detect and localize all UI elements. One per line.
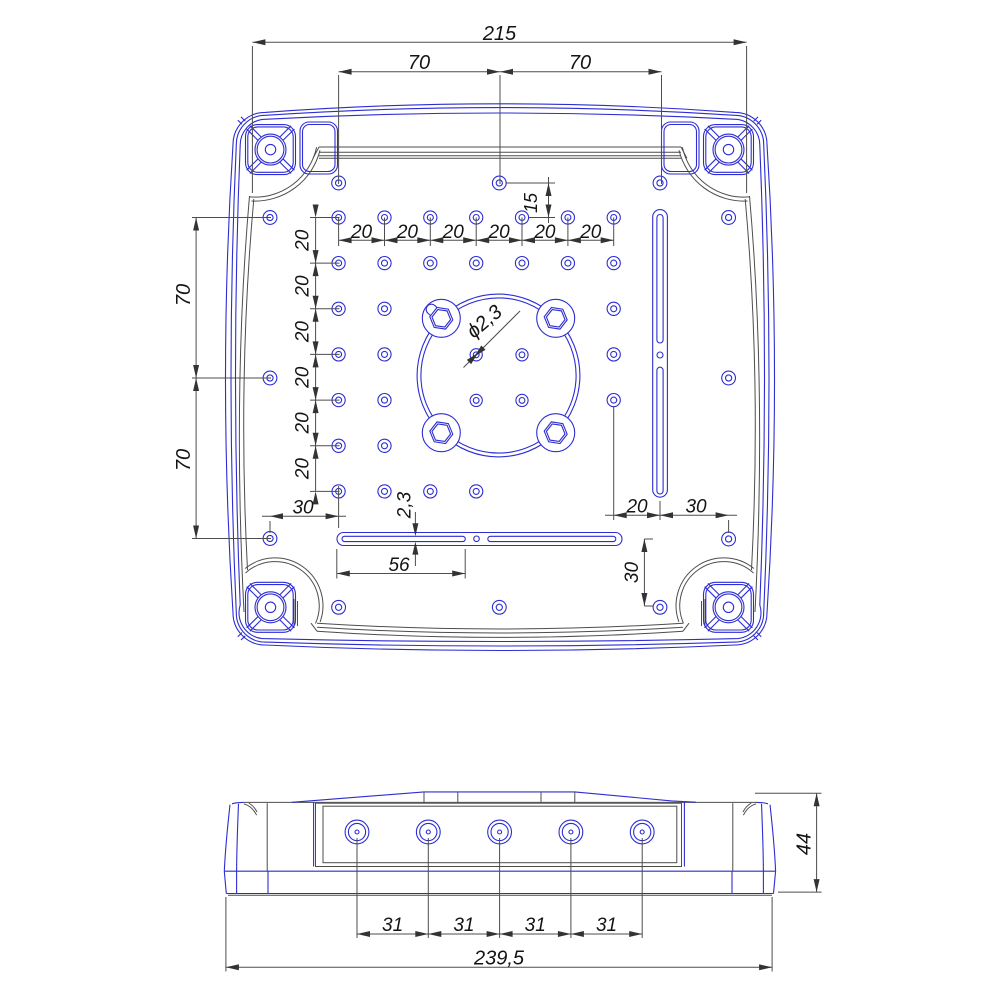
svg-text:20: 20 [293, 321, 314, 344]
svg-text:30: 30 [292, 498, 314, 519]
svg-text:56: 56 [388, 555, 410, 576]
svg-text:70: 70 [173, 449, 195, 471]
svg-text:20: 20 [293, 412, 314, 435]
svg-text:30: 30 [685, 496, 707, 517]
svg-text:20: 20 [293, 275, 314, 298]
svg-text:20: 20 [396, 222, 419, 243]
svg-text:31: 31 [596, 915, 617, 936]
svg-text:70: 70 [569, 52, 591, 74]
svg-text:20: 20 [293, 458, 314, 481]
svg-text:215: 215 [482, 23, 517, 45]
svg-text:44: 44 [794, 833, 816, 855]
svg-text:20: 20 [579, 222, 602, 243]
svg-text:70: 70 [173, 284, 195, 306]
svg-text:15: 15 [521, 192, 541, 213]
svg-text:30: 30 [622, 562, 643, 584]
svg-text:31: 31 [382, 915, 403, 936]
svg-text:20: 20 [350, 222, 373, 243]
svg-text:20: 20 [442, 222, 465, 243]
svg-text:20: 20 [488, 222, 511, 243]
svg-text:2,3: 2,3 [395, 491, 416, 519]
svg-text:20: 20 [293, 366, 314, 389]
svg-text:70: 70 [408, 52, 430, 74]
svg-text:20: 20 [533, 222, 556, 243]
svg-text:31: 31 [525, 915, 546, 936]
svg-text:20: 20 [293, 229, 314, 252]
svg-text:31: 31 [453, 915, 474, 936]
svg-text:239,5: 239,5 [473, 947, 525, 969]
svg-text:20: 20 [625, 496, 648, 517]
